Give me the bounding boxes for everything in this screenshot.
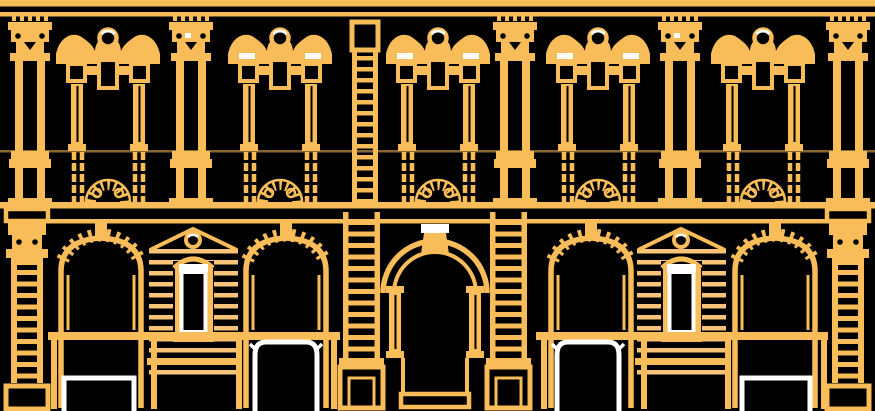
quoin-chain — [352, 22, 378, 202]
facade-drawing — [0, 0, 875, 411]
balcony-string-course — [0, 202, 875, 224]
canvas — [0, 0, 875, 411]
upper-windows — [56, 30, 815, 152]
keystone-white-cap — [421, 224, 449, 233]
central-portal — [339, 212, 531, 408]
balcony-railing — [0, 150, 875, 202]
crowning-cornice — [0, 0, 875, 17]
entry-step — [401, 394, 469, 407]
